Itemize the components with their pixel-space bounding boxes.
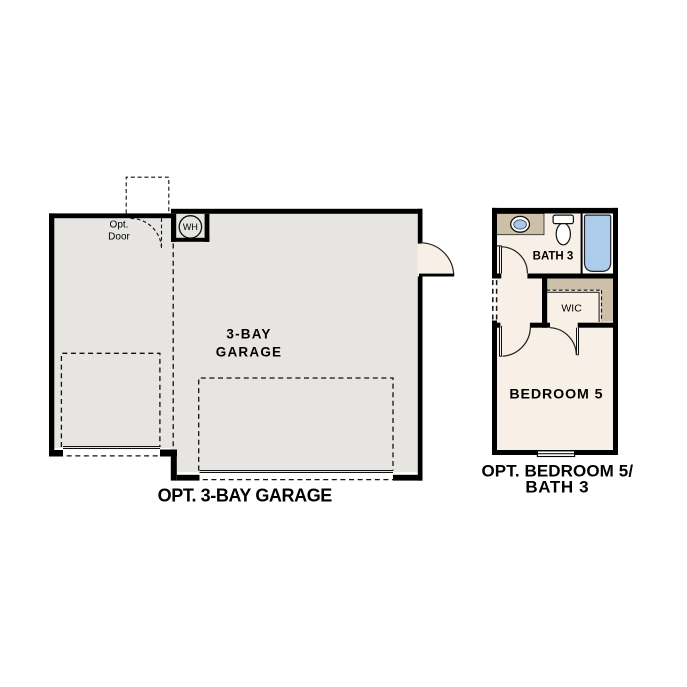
svg-text:3-BAY: 3-BAY [226,326,271,341]
svg-text:WIC: WIC [561,303,582,315]
svg-text:BATH 3: BATH 3 [533,251,574,263]
svg-text:Door: Door [108,231,130,242]
svg-text:GARAGE: GARAGE [216,345,282,360]
svg-text:WH: WH [183,222,198,232]
svg-text:BATH 3: BATH 3 [525,478,589,497]
svg-text:Opt.: Opt. [110,220,129,231]
svg-text:OPT. 3-BAY GARAGE: OPT. 3-BAY GARAGE [158,486,333,506]
svg-text:BEDROOM 5: BEDROOM 5 [509,386,603,402]
